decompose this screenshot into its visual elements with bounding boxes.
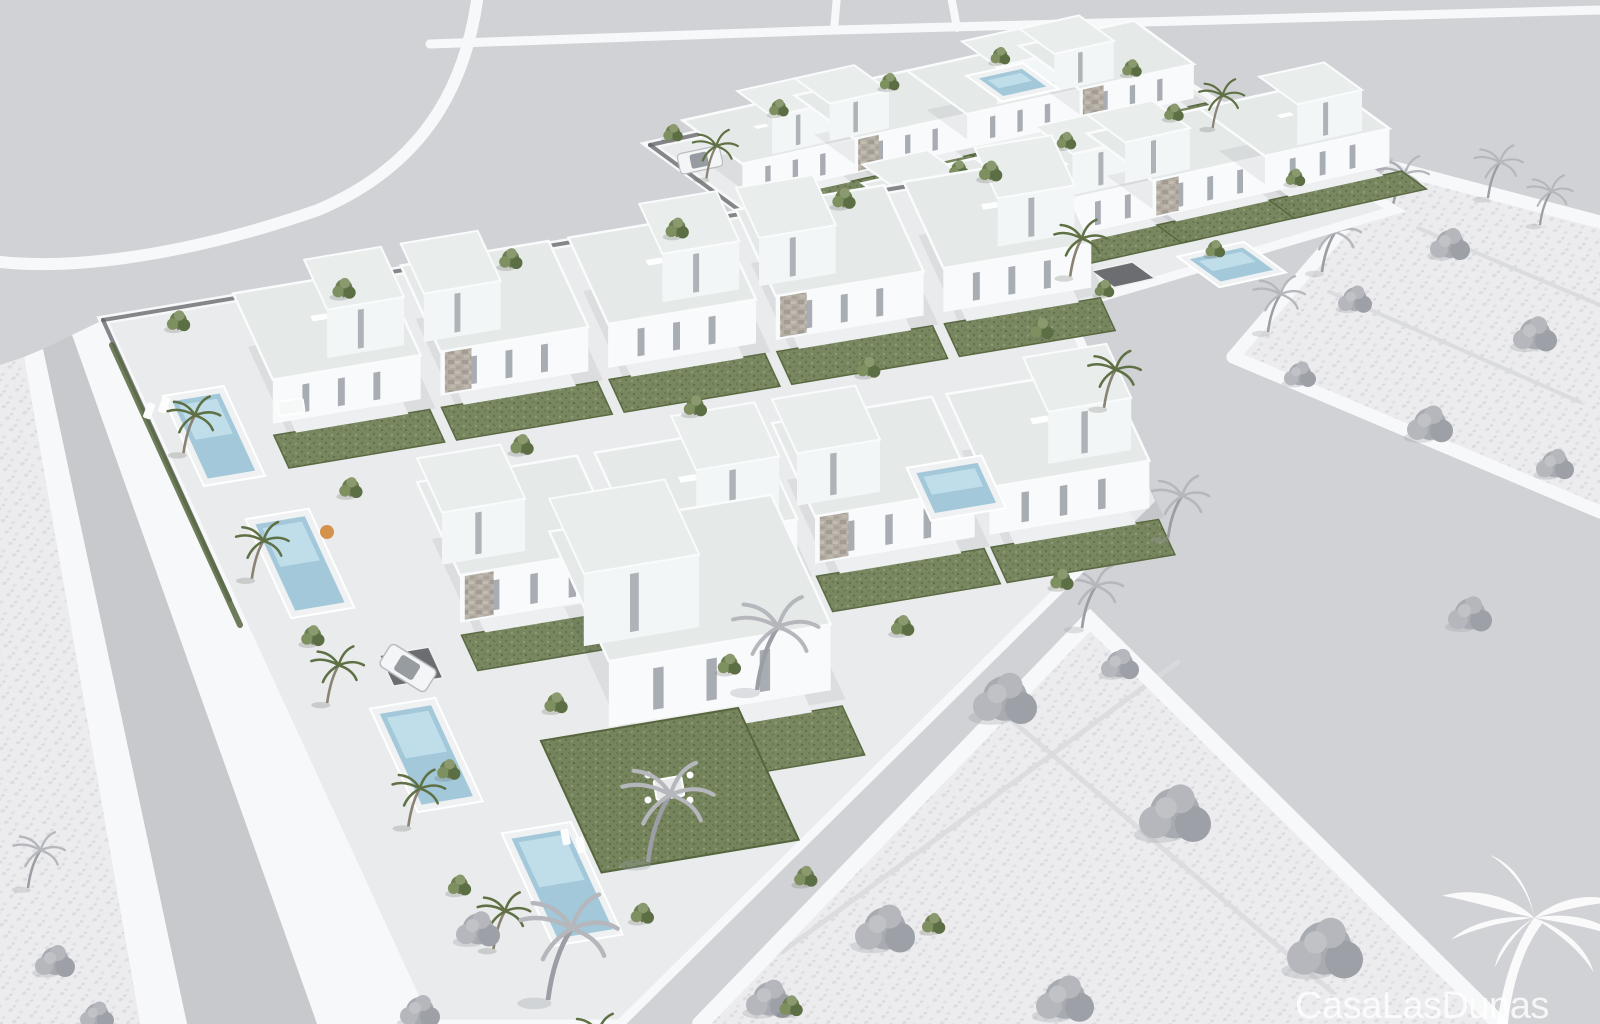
window: [830, 453, 836, 496]
window: [338, 377, 345, 406]
garden-chair: [645, 797, 652, 804]
window: [709, 316, 716, 345]
window: [475, 512, 481, 555]
window: [1237, 169, 1243, 194]
window: [1078, 52, 1083, 83]
window: [693, 253, 699, 293]
window: [1044, 260, 1051, 289]
aerial-render-image: CasaLasDunas: [0, 0, 1600, 1024]
window: [1022, 491, 1029, 522]
window: [933, 128, 938, 151]
window: [1017, 109, 1022, 132]
window: [707, 658, 717, 701]
window: [790, 237, 796, 277]
orange-pouf: [320, 525, 334, 539]
window: [1081, 411, 1087, 454]
window: [990, 116, 995, 139]
garden-chair: [687, 772, 694, 779]
crosswalk-line: [834, 0, 837, 30]
window: [973, 272, 980, 301]
window: [1098, 152, 1103, 186]
stone-accent-wall: [1156, 176, 1178, 215]
window: [1323, 102, 1328, 136]
window: [1028, 197, 1034, 237]
stone-accent-wall: [445, 348, 472, 393]
window: [455, 293, 461, 333]
window: [820, 153, 825, 176]
window: [796, 114, 801, 145]
roof-sofa-set: [277, 398, 305, 416]
stone-accent-wall: [465, 571, 494, 620]
watermark-text: CasaLasDunas: [1295, 985, 1549, 1024]
stone-accent-wall: [820, 512, 849, 561]
window: [885, 514, 892, 545]
window: [1125, 194, 1131, 219]
window: [1157, 79, 1162, 102]
window: [1350, 144, 1356, 169]
window: [638, 328, 645, 357]
stone-accent-wall: [780, 292, 807, 337]
window: [1098, 478, 1106, 509]
window: [1095, 201, 1101, 226]
window: [841, 294, 848, 323]
development-aerial-render: CasaLasDunas: [0, 0, 1600, 1024]
window: [1008, 266, 1015, 295]
window: [373, 372, 380, 401]
window: [653, 667, 663, 710]
window: [530, 573, 538, 604]
window: [1151, 140, 1156, 174]
window: [630, 573, 639, 633]
window: [1320, 151, 1326, 176]
window: [506, 350, 513, 379]
window: [673, 322, 680, 351]
window: [876, 288, 883, 317]
window: [1207, 176, 1213, 201]
window: [541, 344, 548, 373]
window: [358, 309, 364, 349]
window: [1060, 485, 1068, 516]
window: [853, 101, 858, 132]
render-scene: [0, 0, 1600, 1024]
